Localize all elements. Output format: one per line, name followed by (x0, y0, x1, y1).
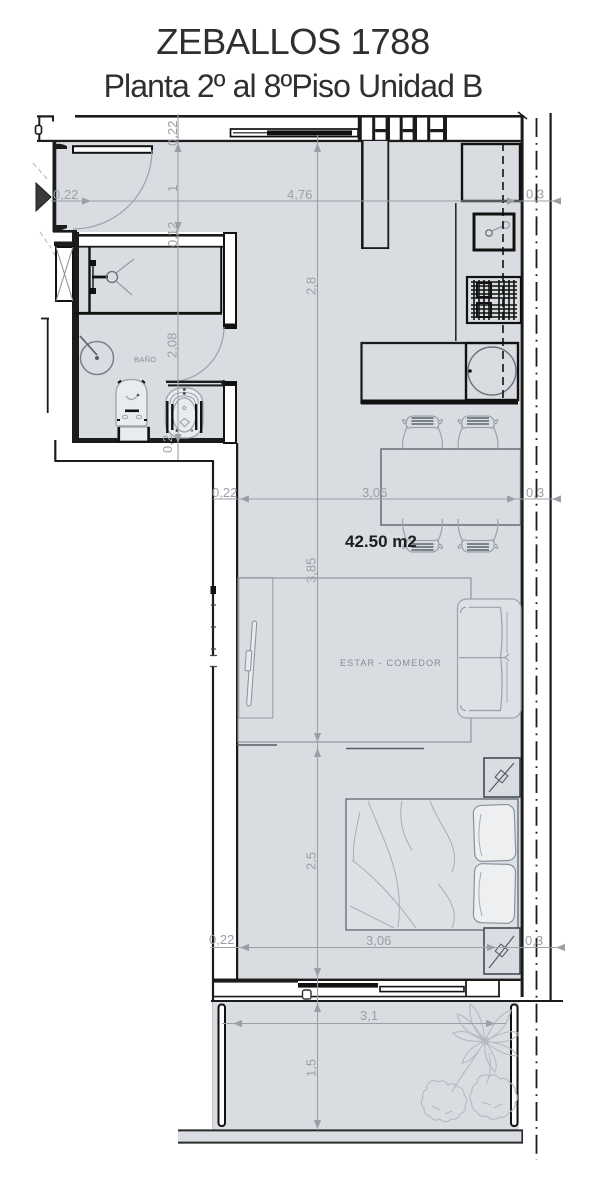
svg-text:4,76: 4,76 (287, 187, 312, 202)
svg-text:0,22: 0,22 (209, 932, 234, 947)
svg-text:3,06: 3,06 (362, 485, 387, 500)
svg-text:BAÑO: BAÑO (134, 355, 156, 364)
svg-text:1: 1 (165, 185, 180, 192)
svg-text:3,1: 3,1 (360, 1008, 378, 1023)
svg-text:2,08: 2,08 (165, 333, 180, 358)
svg-text:42.50 m2: 42.50 m2 (345, 532, 417, 551)
svg-text:0,3: 0,3 (526, 485, 544, 500)
svg-text:0,3: 0,3 (526, 187, 544, 202)
svg-text:0,3: 0,3 (525, 933, 543, 948)
svg-text:0,2: 0,2 (160, 435, 175, 453)
svg-text:3,06: 3,06 (366, 933, 391, 948)
svg-text:1,5: 1,5 (304, 1059, 319, 1077)
svg-text:2,8: 2,8 (304, 277, 319, 295)
svg-text:3,85: 3,85 (304, 558, 319, 583)
svg-text:2,5: 2,5 (304, 852, 319, 870)
svg-text:0,22: 0,22 (165, 121, 180, 146)
svg-text:0,22: 0,22 (212, 485, 237, 500)
svg-text:ESTAR - COMEDOR: ESTAR - COMEDOR (340, 658, 442, 668)
svg-text:0,12: 0,12 (165, 222, 180, 247)
svg-text:0,22: 0,22 (53, 187, 78, 202)
